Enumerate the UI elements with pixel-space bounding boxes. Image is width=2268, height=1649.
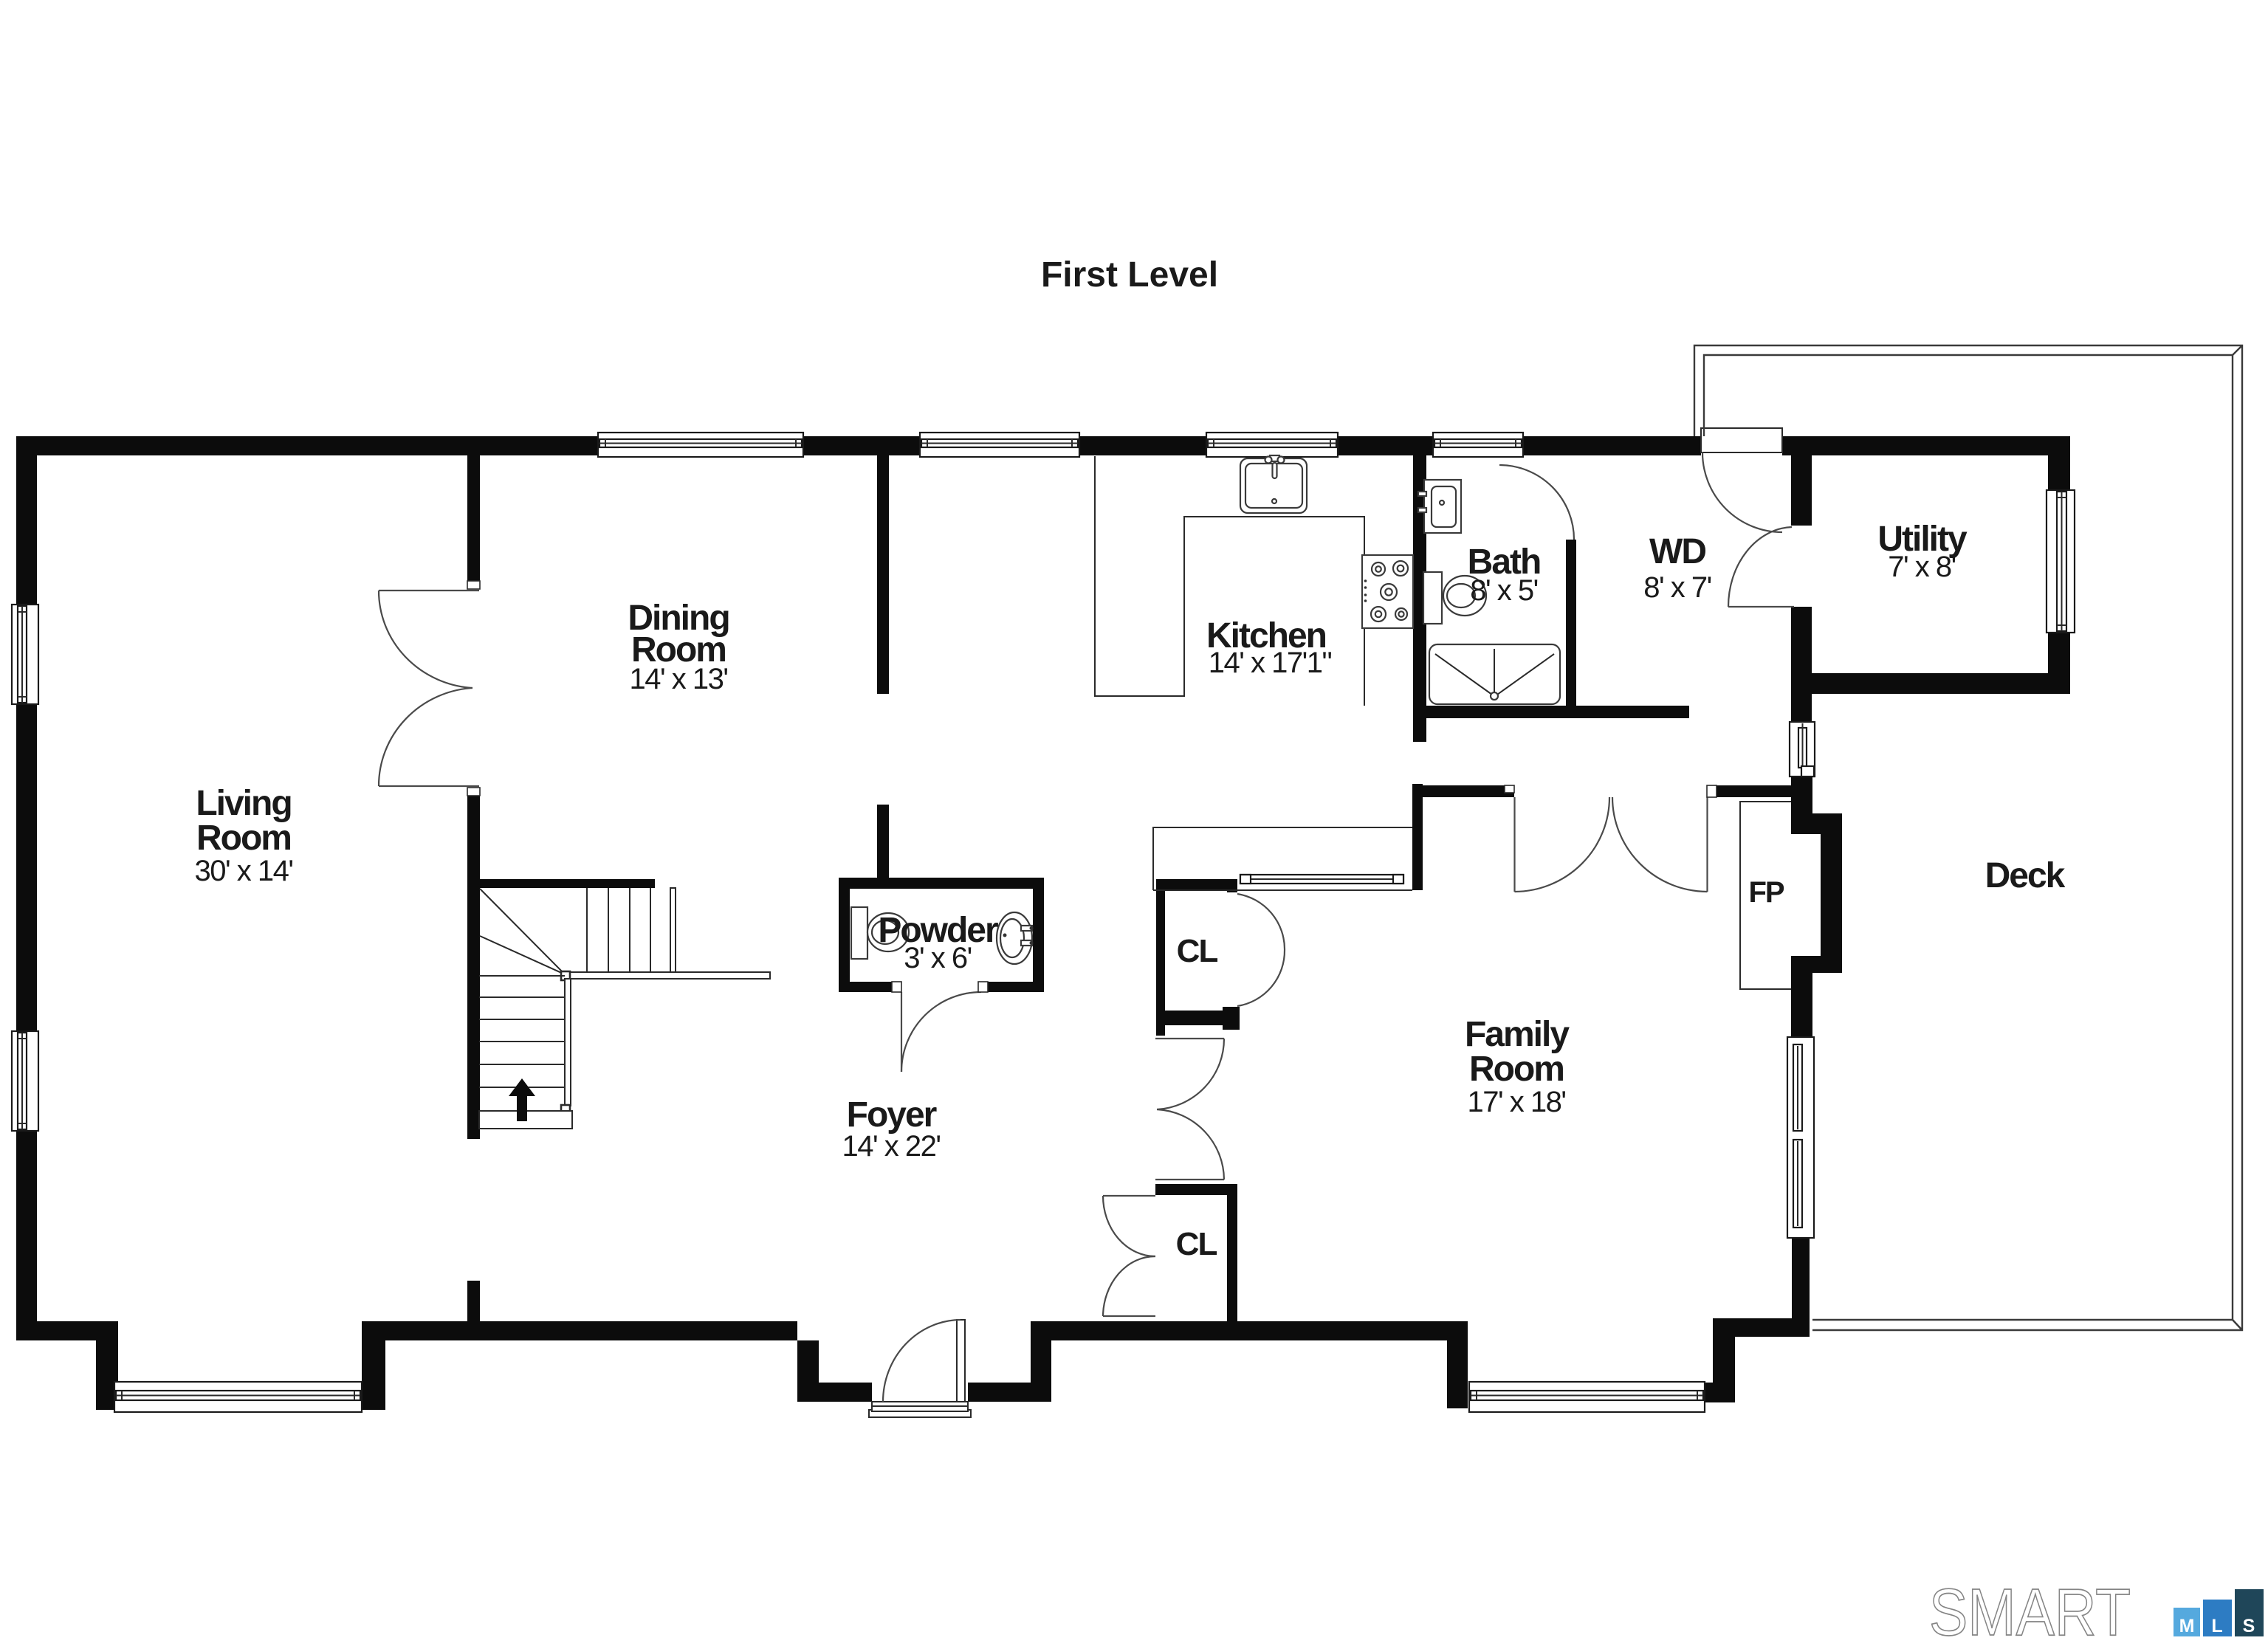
svg-text:Foyer: Foyer [847,1095,937,1135]
svg-text:30' x 14': 30' x 14' [195,855,293,887]
svg-text:7' x 8': 7' x 8' [1888,551,1956,583]
svg-text:CL: CL [1176,1226,1217,1262]
svg-text:Family: Family [1465,1015,1570,1054]
svg-text:Room: Room [1469,1050,1564,1089]
svg-text:3' x 6': 3' x 6' [904,942,972,974]
svg-text:M: M [2179,1616,2195,1636]
svg-text:WD: WD [1649,532,1705,571]
svg-text:Deck: Deck [1985,856,2066,895]
svg-text:First Level: First Level [1041,255,1218,295]
svg-text:8' x 5': 8' x 5' [1470,574,1538,607]
svg-text:SMART: SMART [1929,1576,2131,1649]
svg-text:17' x 18': 17' x 18' [1468,1086,1566,1118]
svg-text:Room: Room [196,819,291,858]
svg-text:8' x 7': 8' x 7' [1643,571,1711,604]
svg-text:S: S [2243,1616,2255,1636]
svg-text:CL: CL [1177,933,1218,969]
svg-text:14' x 22': 14' x 22' [842,1130,941,1163]
svg-text:FP: FP [1748,876,1784,909]
svg-text:14' x 17'1": 14' x 17'1" [1209,647,1332,679]
svg-text:14' x 13': 14' x 13' [630,663,728,695]
svg-text:L: L [2211,1616,2222,1636]
svg-text:Living: Living [196,784,291,823]
